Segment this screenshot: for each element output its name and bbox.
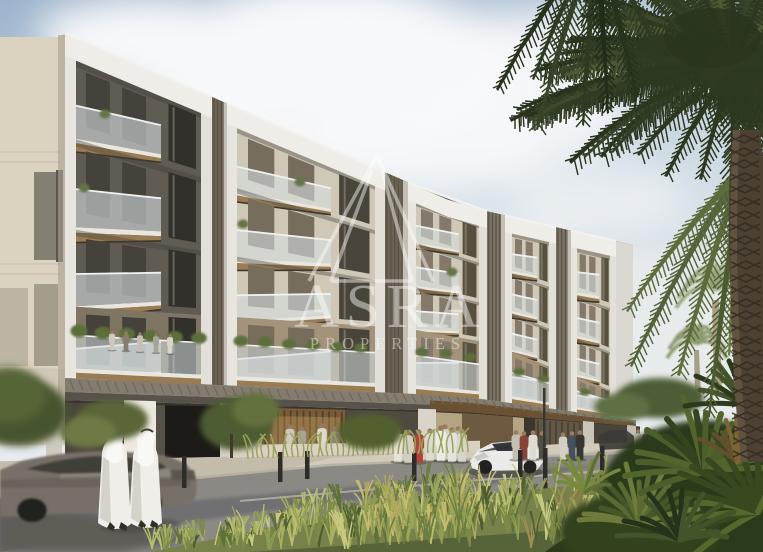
svg-text:PROPERTIES: PROPERTIES [310,334,466,353]
svg-text:ASRA: ASRA [294,273,485,341]
